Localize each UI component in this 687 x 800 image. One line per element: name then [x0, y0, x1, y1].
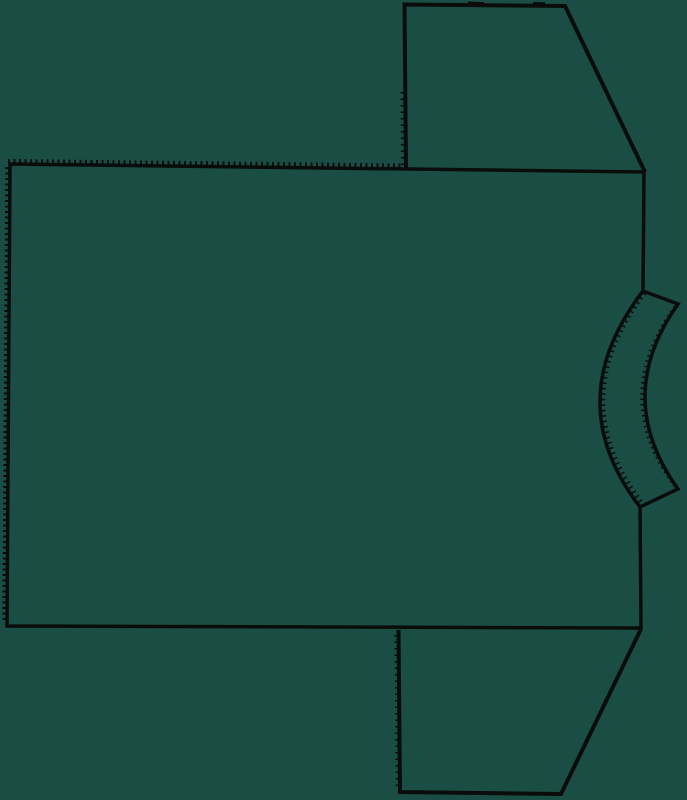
sleeve-top-outline[interactable]	[405, 5, 646, 173]
sleeve-top-notch-right	[533, 3, 545, 4]
body-panel-outline[interactable]	[7, 164, 644, 628]
sleeve-piece-bottom	[396, 629, 641, 794]
neckband-piece	[600, 291, 678, 507]
body-panel	[4, 161, 644, 628]
pattern-canvas	[0, 0, 687, 800]
sleeve-bottom-outline[interactable]	[399, 629, 642, 794]
sleeve-top-notch-left	[468, 3, 484, 4]
neckband-rough-edge-outer	[603, 293, 644, 503]
neckband-outline[interactable]	[600, 291, 678, 507]
sleeve-top-tick-edge-left	[403, 92, 404, 166]
sleeve-piece-top	[403, 3, 646, 172]
